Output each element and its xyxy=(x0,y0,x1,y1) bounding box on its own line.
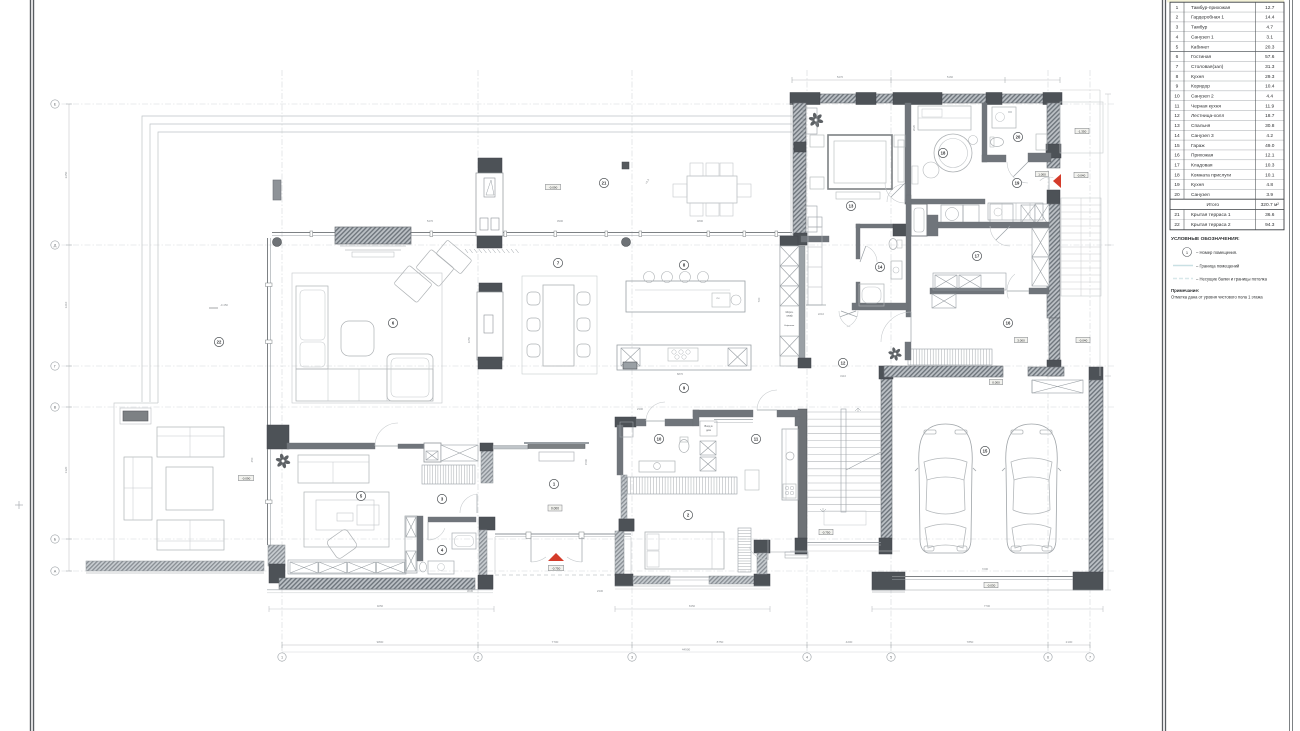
svg-text:Санузел: Санузел xyxy=(1191,192,1210,198)
svg-text:2020: 2020 xyxy=(912,124,916,131)
svg-text:7700: 7700 xyxy=(552,640,559,644)
svg-text:16: 16 xyxy=(1174,153,1180,159)
svg-text:10: 10 xyxy=(1174,94,1180,100)
svg-text:6870: 6870 xyxy=(677,372,684,376)
svg-text:7850: 7850 xyxy=(967,640,974,644)
svg-text:4.2: 4.2 xyxy=(1266,133,1273,139)
svg-text:4200: 4200 xyxy=(846,640,853,644)
svg-text:1: 1 xyxy=(1176,5,1179,11)
svg-text:-0.040: -0.040 xyxy=(1077,173,1086,177)
svg-text:– Несущие балки и границы пот: – Несущие балки и границы потолка xyxy=(1196,276,1268,281)
svg-text:Е: Е xyxy=(54,103,57,107)
svg-text:1500: 1500 xyxy=(584,458,588,465)
svg-text:Столовая(зал): Столовая(зал) xyxy=(1191,64,1224,70)
svg-text:29.3: 29.3 xyxy=(1265,74,1275,80)
svg-text:-0.750: -0.750 xyxy=(552,566,561,570)
svg-text:320.7 м²: 320.7 м² xyxy=(1261,202,1280,208)
svg-text:0.000: 0.000 xyxy=(551,506,559,510)
svg-text:-1.350: -1.350 xyxy=(1078,129,1087,133)
svg-text:450: 450 xyxy=(250,457,254,462)
svg-text:Гараж: Гараж xyxy=(1191,143,1205,149)
svg-text:-0.040: -0.040 xyxy=(1079,338,1088,342)
svg-text:12: 12 xyxy=(1174,113,1180,119)
svg-text:760: 760 xyxy=(757,297,761,302)
svg-text:36.6: 36.6 xyxy=(1265,212,1275,218)
svg-text:Д: Д xyxy=(54,244,57,248)
svg-text:15: 15 xyxy=(1174,143,1180,149)
svg-text:УСЛОВНЫЕ ОБОЗНАЧЕНИЯ:: УСЛОВНЫЕ ОБОЗНАЧЕНИЯ: xyxy=(1171,236,1240,242)
svg-text:Кладовая: Кладовая xyxy=(1191,163,1213,169)
svg-text:4800: 4800 xyxy=(697,219,704,223)
svg-text:Итого: Итого xyxy=(1206,202,1219,208)
svg-text:– Граница помещений: – Граница помещений xyxy=(1196,263,1240,268)
svg-text:19: 19 xyxy=(1015,181,1020,186)
svg-text:13: 13 xyxy=(1174,123,1180,129)
svg-text:22: 22 xyxy=(1174,222,1180,228)
svg-text:49.0: 49.0 xyxy=(1265,143,1275,149)
svg-text:2210: 2210 xyxy=(818,312,825,316)
svg-text:3030: 3030 xyxy=(467,589,474,593)
svg-text:10: 10 xyxy=(657,437,662,442)
svg-text:10.4: 10.4 xyxy=(1265,84,1275,90)
svg-text:15: 15 xyxy=(983,449,988,454)
svg-text:7850: 7850 xyxy=(1093,466,1097,473)
svg-text:Крытая терраса 2: Крытая терраса 2 xyxy=(1191,222,1231,228)
svg-text:Санузел 2: Санузел 2 xyxy=(1191,94,1214,100)
svg-text:1: 1 xyxy=(281,656,283,660)
svg-text:Кухня: Кухня xyxy=(1191,182,1204,188)
svg-text:14: 14 xyxy=(1174,133,1180,139)
svg-text:А: А xyxy=(54,570,57,574)
svg-text:11: 11 xyxy=(754,437,759,442)
svg-text:12: 12 xyxy=(841,361,846,366)
svg-text:3110: 3110 xyxy=(840,374,846,378)
svg-text:10.1: 10.1 xyxy=(1265,172,1275,178)
svg-text:10.3: 10.3 xyxy=(1265,163,1275,169)
svg-text:5470: 5470 xyxy=(837,75,844,79)
svg-text:3900: 3900 xyxy=(557,219,564,223)
svg-text:Прихожая: Прихожая xyxy=(1191,153,1214,159)
svg-text:7: 7 xyxy=(1176,64,1179,70)
svg-text:-0.450: -0.450 xyxy=(220,303,228,307)
svg-text:Кабинет: Кабинет xyxy=(1191,44,1210,50)
svg-text:8750: 8750 xyxy=(717,640,724,644)
svg-text:11: 11 xyxy=(1175,103,1180,109)
svg-text:3.1: 3.1 xyxy=(1266,34,1273,40)
svg-text:21: 21 xyxy=(1174,212,1180,218)
svg-text:6350: 6350 xyxy=(689,604,696,608)
svg-text:30.8: 30.8 xyxy=(1265,123,1275,129)
svg-text:Санузел 1: Санузел 1 xyxy=(1191,34,1214,40)
svg-text:20.3: 20.3 xyxy=(1265,44,1275,50)
svg-text:2300: 2300 xyxy=(637,407,644,411)
svg-text:8: 8 xyxy=(1176,74,1179,80)
svg-text:– Номер помещения.: – Номер помещения. xyxy=(1196,250,1237,255)
svg-text:3.9: 3.9 xyxy=(1266,192,1273,198)
svg-text:31.3: 31.3 xyxy=(1265,64,1275,70)
svg-text:3: 3 xyxy=(1176,25,1179,31)
svg-text:Гостиная: Гостиная xyxy=(1191,54,1212,60)
svg-text:7700: 7700 xyxy=(984,604,991,608)
svg-text:94.3: 94.3 xyxy=(1265,222,1275,228)
svg-text:4.8: 4.8 xyxy=(1266,182,1273,188)
svg-text:22: 22 xyxy=(217,340,222,345)
svg-text:4.7: 4.7 xyxy=(1266,25,1273,31)
svg-text:57.6: 57.6 xyxy=(1265,54,1275,60)
svg-text:Лестница-холл: Лестница-холл xyxy=(1191,113,1224,119)
svg-text:14: 14 xyxy=(878,265,883,270)
svg-text:Санузел 3: Санузел 3 xyxy=(1191,133,1214,139)
svg-text:-0.030: -0.030 xyxy=(987,583,996,587)
svg-text:Вход в: Вход в xyxy=(705,424,714,428)
svg-text:В: В xyxy=(54,406,57,410)
svg-text:Отметка дана от уровня чистово: Отметка дана от уровня чистового пола 1 … xyxy=(1171,295,1263,300)
svg-text:9250: 9250 xyxy=(377,604,384,608)
svg-text:Примечание:: Примечание: xyxy=(1171,288,1200,293)
svg-text:0.000: 0.000 xyxy=(992,380,1000,384)
svg-text:Спальня: Спальня xyxy=(1191,123,1211,129)
svg-text:6: 6 xyxy=(1176,54,1179,60)
svg-text:2: 2 xyxy=(1176,15,1179,21)
svg-text:13: 13 xyxy=(849,204,854,209)
svg-text:Крытая терраса 1: Крытая терраса 1 xyxy=(1191,212,1231,218)
svg-text:Г: Г xyxy=(54,365,56,369)
svg-text:1650: 1650 xyxy=(467,336,471,343)
svg-text:4: 4 xyxy=(1176,34,1179,40)
svg-text:1320: 1320 xyxy=(64,466,68,473)
svg-text:16: 16 xyxy=(1006,321,1011,326)
svg-text:12.7: 12.7 xyxy=(1265,5,1275,11)
svg-text:Кофемаш.: Кофемаш. xyxy=(784,324,795,327)
svg-text:7200: 7200 xyxy=(982,567,989,571)
svg-text:1210: 1210 xyxy=(64,301,68,308)
svg-text:17: 17 xyxy=(975,254,980,259)
svg-text:2250: 2250 xyxy=(64,171,68,178)
svg-text:3: 3 xyxy=(631,656,633,660)
svg-text:-0.750: -0.750 xyxy=(822,530,831,534)
svg-text:5: 5 xyxy=(1176,44,1179,50)
svg-text:5470: 5470 xyxy=(427,219,434,223)
svg-text:9: 9 xyxy=(1176,84,1179,90)
svg-text:7: 7 xyxy=(1089,656,1091,660)
svg-text:Тамбур-прихожая: Тамбур-прихожая xyxy=(1191,5,1231,11)
svg-text:2330: 2330 xyxy=(597,589,604,593)
svg-text:19: 19 xyxy=(1174,182,1180,188)
svg-text:-0.090: -0.090 xyxy=(242,476,251,480)
svg-text:12.1: 12.1 xyxy=(1265,153,1275,159)
svg-text:20: 20 xyxy=(1174,192,1180,198)
svg-text:11.9: 11.9 xyxy=(1265,103,1274,109)
svg-text:18.7: 18.7 xyxy=(1265,113,1275,119)
svg-text:Тамбур: Тамбур xyxy=(1191,25,1208,31)
svg-text:4: 4 xyxy=(806,656,808,660)
svg-text:Кухня: Кухня xyxy=(1191,74,1204,80)
svg-text:Черная кухня: Черная кухня xyxy=(1191,103,1221,109)
svg-text:5160: 5160 xyxy=(947,75,954,79)
svg-text:17: 17 xyxy=(1174,163,1180,169)
svg-text:18: 18 xyxy=(941,151,946,156)
svg-text:дом: дом xyxy=(706,429,711,432)
svg-text:2: 2 xyxy=(477,656,479,660)
svg-text:6: 6 xyxy=(1047,656,1049,660)
svg-text:4.4: 4.4 xyxy=(1266,94,1273,100)
svg-text:Комната прислуги: Комната прислуги xyxy=(1191,172,1231,178)
svg-text:21: 21 xyxy=(602,181,607,186)
svg-text:шкаф: шкаф xyxy=(786,315,792,318)
svg-text:44900: 44900 xyxy=(682,648,691,652)
svg-text:Коридор: Коридор xyxy=(1191,84,1210,90)
svg-text:5: 5 xyxy=(890,656,892,660)
svg-text:1.000: 1.000 xyxy=(1038,172,1046,176)
svg-text:-0.090: -0.090 xyxy=(549,185,558,189)
svg-text:18: 18 xyxy=(1174,172,1180,178)
svg-text:3.000: 3.000 xyxy=(1017,338,1025,342)
svg-text:14.4: 14.4 xyxy=(1265,15,1275,21)
svg-text:Гардеробная 1: Гардеробная 1 xyxy=(1191,15,1224,21)
svg-text:2100: 2100 xyxy=(1066,640,1073,644)
svg-text:9800: 9800 xyxy=(377,640,384,644)
svg-text:20: 20 xyxy=(1016,135,1021,140)
